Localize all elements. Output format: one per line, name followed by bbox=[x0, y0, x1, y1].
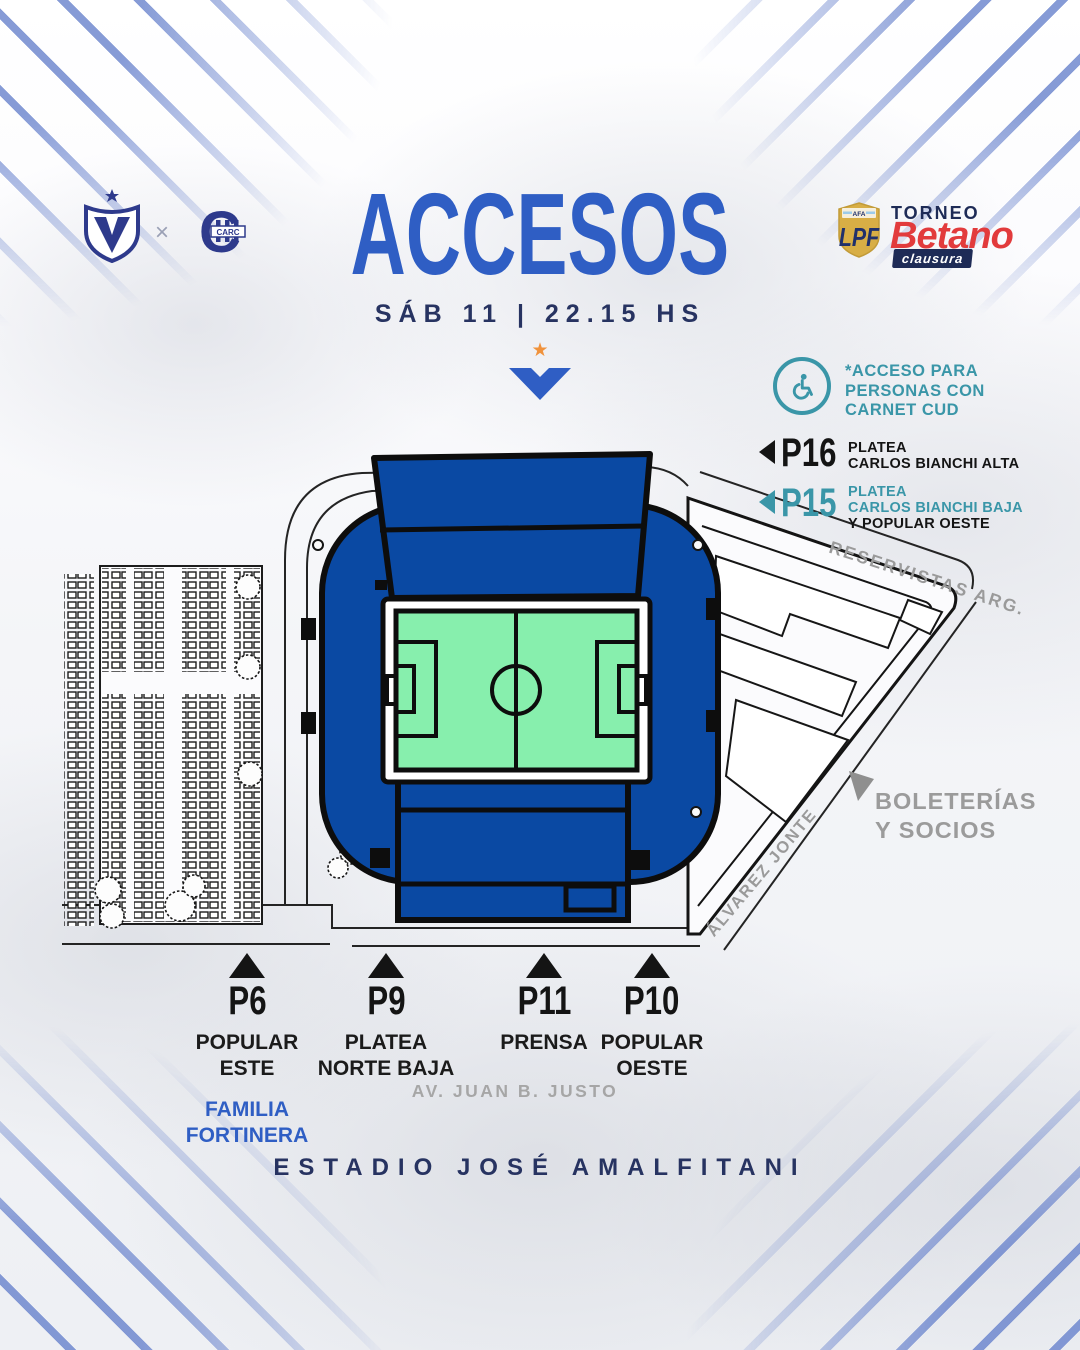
clausura-badge: clausura bbox=[892, 249, 973, 268]
gate-p16-id: P16 bbox=[781, 433, 852, 473]
gate-p9-label: PLATEA NORTE BAJA bbox=[298, 1030, 474, 1082]
svg-text:AFA: AFA bbox=[853, 211, 866, 218]
cud-access-note: *ACCESO PARA PERSONAS CON CARNET CUD bbox=[845, 362, 985, 421]
star-icon: ★ bbox=[0, 341, 1080, 360]
gate-p9: P9 PLATEA NORTE BAJA bbox=[298, 953, 474, 1082]
chevron-down-icon bbox=[508, 368, 572, 400]
lpf-shield-icon: AFA LPF bbox=[838, 202, 880, 258]
match-datetime: SÁB 11 | 22.15 HS bbox=[0, 300, 1080, 329]
arrow-up-icon-p9 bbox=[368, 953, 404, 978]
arrow-left-icon-p16 bbox=[759, 440, 775, 464]
arrow-up-icon-p10 bbox=[634, 953, 670, 978]
street-label-alvarez-jonte: ÁLVAREZ JONTE bbox=[703, 806, 820, 941]
gate-p16-description: PLATEA CARLOS BIANCHI ALTA bbox=[848, 440, 1019, 472]
wheelchair-access-icon bbox=[773, 357, 831, 415]
arrow-left-icon-p15 bbox=[759, 490, 775, 514]
gate-p9-id: P9 bbox=[298, 981, 474, 1021]
gate-p15-description: PLATEA CARLOS BIANCHI BAJA Y POPULAR OES… bbox=[848, 484, 1023, 532]
gate-p10: P10 POPULAR OESTE bbox=[564, 953, 740, 1082]
street-label-juan-b-justo: AV. JUAN B. JUSTO bbox=[395, 1081, 635, 1102]
street-label-reservistas: RESERVISTAS ARG. bbox=[827, 537, 1029, 620]
arrow-up-icon-p11 bbox=[526, 953, 562, 978]
arrow-up-icon-p6 bbox=[229, 953, 265, 978]
svg-text:LPF: LPF bbox=[839, 223, 880, 253]
familia-fortinera-label: FAMILIA FORTINERA bbox=[159, 1097, 335, 1149]
gate-p15-id: P15 bbox=[781, 483, 852, 523]
gate-p10-label: POPULAR OESTE bbox=[564, 1030, 740, 1082]
gate-p10-id: P10 bbox=[564, 981, 740, 1021]
stadium-name: ESTADIO JOSÉ AMALFITANI bbox=[0, 1154, 1080, 1182]
boleterias-label: BOLETERÍAS Y SOCIOS bbox=[875, 787, 1036, 845]
